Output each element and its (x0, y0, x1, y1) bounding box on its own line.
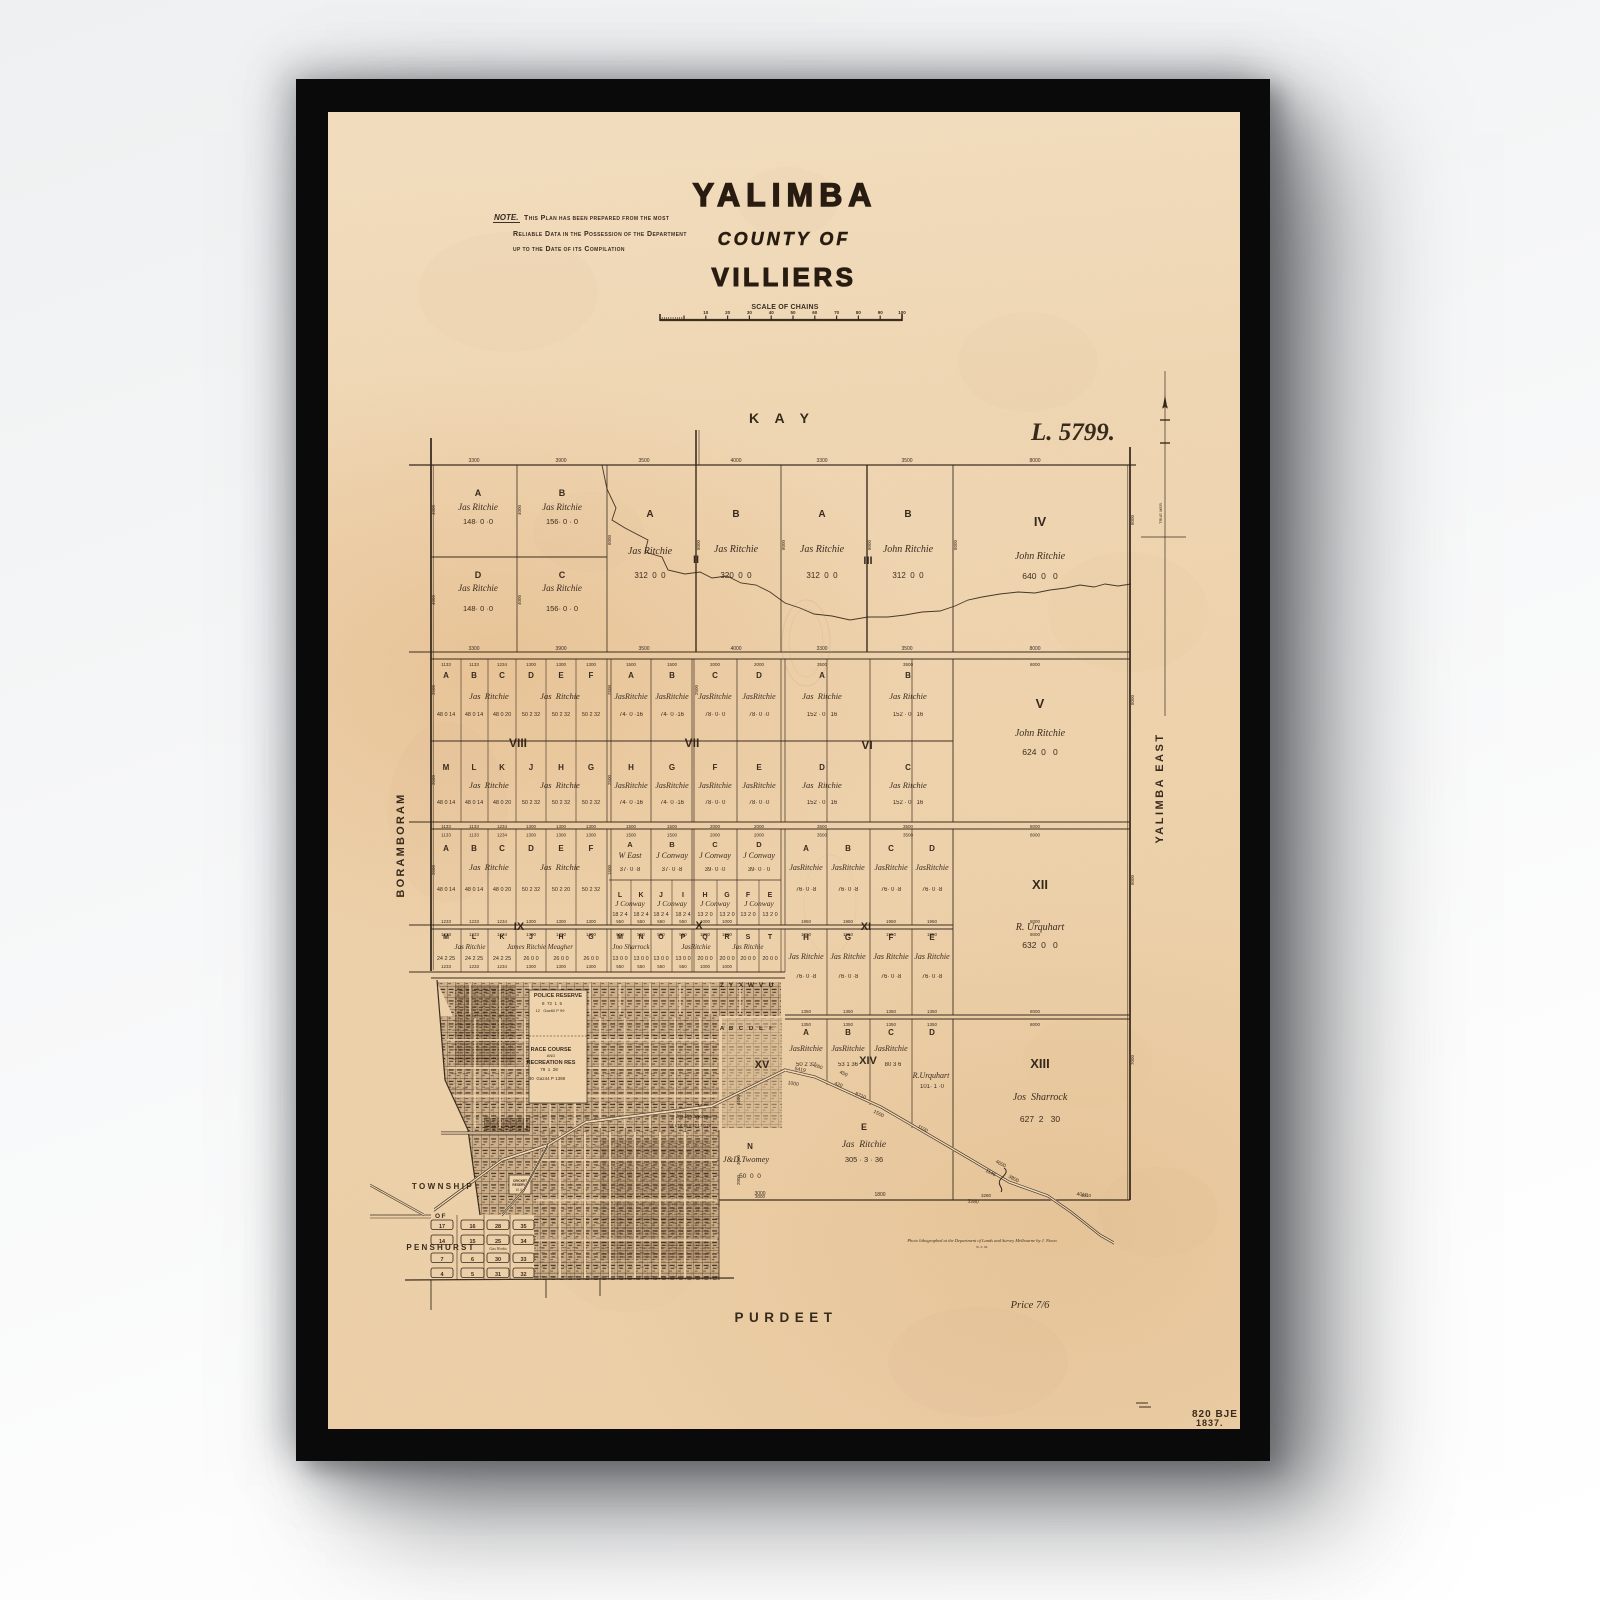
svg-text:C: C (559, 570, 566, 580)
svg-text:50 2 32: 50 2 32 (582, 800, 600, 806)
svg-text:K: K (499, 763, 505, 772)
svg-text:B: B (845, 1028, 851, 1037)
svg-text:13 0 0: 13 0 0 (653, 956, 668, 962)
svg-text:148· 0 ·0: 148· 0 ·0 (463, 517, 493, 526)
svg-text:13 0 0: 13 0 0 (633, 956, 648, 962)
svg-text:B: B (904, 509, 911, 520)
svg-text:Jno Sharrock: Jno Sharrock (612, 943, 650, 951)
svg-text:2000: 2000 (754, 824, 765, 829)
svg-text:RELIABLE DATA IN THE POSSESSIO: RELIABLE DATA IN THE POSSESSION OF THE D… (513, 231, 687, 238)
svg-text:1350: 1350 (843, 1022, 854, 1027)
svg-text:Jas Ritchie: Jas Ritchie (802, 691, 842, 701)
svg-text:50 2 20: 50 2 20 (552, 887, 570, 893)
svg-text:J: J (659, 892, 663, 899)
svg-text:4000: 4000 (431, 504, 436, 515)
svg-text:50 0 0: 50 0 0 (739, 1173, 761, 1180)
svg-text:XI: XI (861, 921, 871, 933)
svg-text:1000: 1000 (722, 932, 733, 937)
svg-text:Photo lithographed at the Depa: Photo lithographed at the Department of … (906, 1238, 1057, 1243)
svg-text:550: 550 (616, 919, 624, 924)
svg-text:3500: 3500 (638, 458, 649, 464)
svg-text:6000: 6000 (607, 534, 612, 545)
svg-text:8000: 8000 (1030, 833, 1041, 838)
svg-text:1350: 1350 (927, 1009, 938, 1014)
svg-text:II: II (693, 554, 699, 566)
svg-text:1950: 1950 (886, 932, 897, 937)
svg-text:C: C (905, 763, 911, 772)
svg-text:12 Gaz60 P 99: 12 Gaz60 P 99 (536, 1008, 566, 1013)
svg-text:XV: XV (755, 1059, 770, 1071)
svg-text:1234: 1234 (497, 919, 508, 924)
svg-text:VII: VII (685, 736, 700, 750)
svg-text:4010: 4010 (1081, 1193, 1092, 1198)
svg-text:D: D (819, 763, 825, 772)
svg-text:76· 0 ·8: 76· 0 ·8 (922, 974, 943, 980)
svg-text:550: 550 (679, 919, 687, 924)
svg-text:TOWNSHIP: TOWNSHIP (412, 1182, 474, 1191)
svg-text:1000: 1000 (700, 932, 711, 937)
svg-text:Jas Ritchie: Jas Ritchie (540, 780, 580, 790)
svg-text:152 · 0 16: 152 · 0 16 (893, 800, 924, 806)
svg-text:Jas Ritchie: Jas Ritchie (714, 544, 759, 555)
svg-text:B: B (905, 671, 911, 680)
svg-text:48 0 14: 48 0 14 (437, 887, 455, 893)
svg-text:XIII: XIII (1030, 1056, 1050, 1071)
svg-text:20 0 0: 20 0 0 (719, 956, 734, 962)
svg-text:48 0 14: 48 0 14 (437, 712, 455, 718)
svg-text:Y: Y (729, 982, 734, 989)
svg-text:C: C (712, 671, 718, 680)
svg-text:50 2 32: 50 2 32 (552, 712, 570, 718)
svg-text:50 2 32: 50 2 32 (582, 712, 600, 718)
svg-text:14: 14 (439, 1239, 446, 1245)
svg-text:Jas Ritchie: Jas Ritchie (889, 780, 927, 790)
svg-text:Jas Ritchie: Jas Ritchie (542, 583, 582, 593)
svg-text:90: 90 (878, 310, 884, 315)
svg-text:F: F (589, 671, 594, 680)
svg-text:31: 31 (495, 1272, 501, 1278)
svg-text:1133: 1133 (441, 662, 451, 667)
svg-text:Jas Ritchie: Jas Ritchie (469, 691, 509, 701)
svg-text:VIII: VIII (509, 736, 527, 750)
svg-text:A: A (720, 1026, 725, 1032)
svg-text:B: B (732, 509, 739, 520)
svg-text:24 2 25: 24 2 25 (437, 956, 455, 962)
svg-text:30: 30 (747, 310, 753, 315)
svg-text:R.Urquhart: R.Urquhart (912, 1071, 951, 1080)
svg-text:Jas Ritchie: Jas Ritchie (542, 502, 582, 512)
svg-text:20: 20 (725, 310, 731, 315)
svg-text:John Ritchie: John Ritchie (1015, 551, 1066, 562)
svg-text:70: 70 (834, 310, 840, 315)
svg-text:Jas Ritchie: Jas Ritchie (842, 1140, 886, 1150)
svg-text:50 2 32: 50 2 32 (522, 800, 540, 806)
svg-text:627 2 30: 627 2 30 (1020, 1114, 1060, 1124)
svg-text:26 0 0: 26 0 0 (523, 956, 538, 962)
svg-text:A: A (803, 844, 809, 853)
svg-text:152 · 0 16: 152 · 0 16 (807, 800, 838, 806)
svg-text:550: 550 (637, 932, 645, 937)
svg-text:8000: 8000 (781, 539, 786, 550)
svg-text:8000: 8000 (696, 539, 701, 550)
svg-text:30: 30 (495, 1257, 501, 1263)
svg-text:13 2 0: 13 2 0 (740, 912, 755, 918)
svg-text:550: 550 (637, 919, 645, 924)
svg-text:Jas Ritchie: Jas Ritchie (889, 691, 927, 701)
svg-text:1000: 1000 (722, 964, 733, 969)
svg-text:2500: 2500 (607, 684, 612, 695)
svg-text:26 0 0: 26 0 0 (583, 956, 598, 962)
svg-text:Jas Ritchie: Jas Ritchie (540, 691, 580, 701)
svg-text:13 2 0: 13 2 0 (762, 912, 777, 918)
svg-text:C: C (499, 844, 505, 853)
svg-text:35: 35 (520, 1224, 526, 1230)
svg-text:48 0 20: 48 0 20 (493, 887, 511, 893)
svg-text:Jas Ritchie: Jas Ritchie (733, 943, 764, 951)
svg-text:1300: 1300 (586, 919, 597, 924)
svg-text:76· 0 ·8: 76· 0 ·8 (796, 974, 817, 980)
svg-text:4000: 4000 (517, 504, 522, 515)
svg-text:550: 550 (616, 932, 624, 937)
svg-text:76· 0 ·8: 76· 0 ·8 (838, 887, 859, 893)
svg-text:1133: 1133 (441, 824, 451, 829)
svg-text:1500: 1500 (667, 833, 678, 838)
svg-text:Jas Ritchie: Jas Ritchie (873, 952, 909, 961)
svg-text:1300: 1300 (526, 964, 537, 969)
svg-text:Gas Works: Gas Works (489, 1246, 507, 1251)
svg-text:37· 0 ·8: 37· 0 ·8 (662, 867, 683, 873)
svg-text:2000: 2000 (710, 824, 721, 829)
svg-text:1837.: 1837. (1196, 1418, 1224, 1428)
svg-text:N: N (747, 1142, 753, 1151)
svg-text:8000: 8000 (1130, 874, 1135, 885)
svg-text:1500: 1500 (626, 824, 637, 829)
svg-text:550: 550 (679, 964, 687, 969)
svg-text:18 2 4: 18 2 4 (653, 912, 668, 918)
svg-text:Jos Sharrock: Jos Sharrock (1013, 1092, 1068, 1103)
svg-text:B: B (729, 1026, 734, 1032)
svg-text:4500: 4500 (736, 1094, 741, 1105)
svg-text:76· 0 ·8: 76· 0 ·8 (796, 887, 817, 893)
svg-text:Jas Ritchie: Jas Ritchie (802, 780, 842, 790)
svg-text:PURDEET: PURDEET (734, 1310, 837, 1325)
svg-text:VILLIERS: VILLIERS (711, 262, 856, 292)
svg-text:48 0 14: 48 0 14 (437, 800, 455, 806)
svg-text:1950: 1950 (843, 919, 854, 924)
svg-text:3300: 3300 (468, 646, 479, 652)
svg-text:VI: VI (861, 738, 872, 752)
svg-text:39· 0 · 0: 39· 0 · 0 (748, 867, 771, 873)
svg-text:53 1 36: 53 1 36 (838, 1062, 859, 1068)
svg-text:4000: 4000 (431, 594, 436, 605)
svg-text:JasRitchie: JasRitchie (742, 781, 776, 790)
svg-text:8000: 8000 (867, 539, 872, 550)
svg-text:BORAMBORAM: BORAMBORAM (395, 792, 407, 897)
svg-text:18 2 4: 18 2 4 (633, 912, 648, 918)
svg-text:8000: 8000 (1029, 458, 1040, 464)
svg-text:JasRitchie: JasRitchie (874, 863, 908, 872)
svg-text:1800: 1800 (874, 1192, 885, 1198)
svg-text:7000: 7000 (1130, 1054, 1135, 1065)
svg-text:NOTE.: NOTE. (494, 213, 518, 222)
svg-text:34: 34 (520, 1239, 527, 1245)
svg-text:8000: 8000 (1029, 646, 1040, 652)
svg-text:50 2 32: 50 2 32 (522, 887, 540, 893)
svg-text:D: D (749, 1026, 754, 1032)
svg-text:THIS PLAN HAS BEEN PREPARED FR: THIS PLAN HAS BEEN PREPARED FROM THE MOS… (524, 215, 669, 222)
svg-text:1233: 1233 (441, 964, 452, 969)
svg-text:1000: 1000 (700, 964, 711, 969)
svg-text:312 0 0: 312 0 0 (634, 571, 666, 580)
svg-text:8000: 8000 (1030, 662, 1041, 667)
svg-text:76· 0 ·8: 76· 0 ·8 (922, 887, 943, 893)
svg-text:148· 0 ·0: 148· 0 ·0 (463, 604, 493, 613)
svg-text:D: D (929, 1028, 935, 1037)
svg-text:JasRitchie: JasRitchie (874, 1044, 908, 1053)
svg-text:18 2 4: 18 2 4 (612, 912, 627, 918)
svg-text:8000: 8000 (1030, 824, 1041, 829)
svg-text:8000: 8000 (953, 539, 958, 550)
svg-text:48 0 14: 48 0 14 (465, 712, 483, 718)
svg-text:7: 7 (440, 1257, 443, 1263)
svg-text:48 0 14: 48 0 14 (465, 800, 483, 806)
svg-text:152 · 0 16: 152 · 0 16 (807, 712, 838, 718)
svg-text:156· 0 · 0: 156· 0 · 0 (546, 517, 578, 526)
svg-text:1233: 1233 (469, 964, 480, 969)
svg-text:T: T (768, 934, 773, 941)
svg-text:1234: 1234 (497, 824, 508, 829)
svg-text:28: 28 (495, 1224, 501, 1230)
svg-text:Z: Z (720, 982, 724, 989)
svg-text:76· 0 ·8: 76· 0 ·8 (838, 974, 859, 980)
svg-text:30 Gaz44 P 1398: 30 Gaz44 P 1398 (529, 1076, 566, 1081)
svg-text:A: A (443, 844, 449, 853)
svg-text:C: C (888, 844, 894, 853)
svg-text:C: C (499, 671, 505, 680)
svg-text:XII: XII (1032, 877, 1048, 892)
svg-text:2500: 2500 (607, 774, 612, 785)
svg-text:1350: 1350 (886, 1022, 897, 1027)
svg-text:6: 6 (471, 1257, 474, 1263)
svg-text:1300: 1300 (526, 833, 537, 838)
svg-text:48 0 20: 48 0 20 (493, 800, 511, 806)
svg-text:1300: 1300 (556, 662, 567, 667)
svg-text:G: G (724, 892, 730, 899)
svg-text:G: G (669, 763, 675, 772)
svg-text:JasRitchie: JasRitchie (655, 692, 689, 701)
svg-text:100: 100 (898, 310, 906, 315)
svg-text:1350: 1350 (843, 1009, 854, 1014)
svg-text:D: D (475, 570, 482, 580)
svg-text:1500: 1500 (667, 662, 678, 667)
svg-text:1350: 1350 (886, 1009, 897, 1014)
svg-text:550: 550 (679, 932, 687, 937)
svg-text:50 2 32: 50 2 32 (552, 800, 570, 806)
svg-text:A: A (475, 488, 482, 498)
svg-text:Jas Ritchie: Jas Ritchie (469, 780, 509, 790)
svg-text:XIV: XIV (859, 1055, 877, 1067)
svg-text:1950: 1950 (886, 919, 897, 924)
svg-text:JasRitchie: JasRitchie (789, 863, 823, 872)
svg-text:F: F (769, 1026, 773, 1032)
svg-text:15: 15 (469, 1239, 475, 1245)
svg-text:3900: 3900 (555, 458, 566, 464)
svg-text:1133: 1133 (469, 824, 479, 829)
svg-text:E: E (861, 1122, 867, 1132)
svg-text:4000: 4000 (730, 458, 741, 464)
svg-text:550: 550 (657, 932, 665, 937)
svg-text:V: V (1036, 696, 1045, 711)
svg-text:8000: 8000 (1030, 1009, 1041, 1014)
svg-text:A: A (818, 509, 825, 520)
svg-text:8000: 8000 (1030, 1022, 1041, 1027)
svg-text:JasRitchie: JasRitchie (831, 863, 865, 872)
svg-text:JasRitchie: JasRitchie (655, 781, 689, 790)
svg-text:V: V (759, 982, 764, 989)
svg-text:Jas Ritchie: Jas Ritchie (469, 862, 509, 872)
svg-text:1233: 1233 (469, 932, 480, 937)
svg-text:78· 0· 0: 78· 0· 0 (705, 800, 726, 806)
svg-text:550: 550 (657, 919, 665, 924)
svg-text:J Conway: J Conway (656, 851, 688, 860)
svg-text:C: C (739, 1026, 744, 1032)
svg-text:AND: AND (547, 1053, 556, 1058)
svg-text:20 0 0: 20 0 0 (762, 956, 777, 962)
svg-text:624 0 0: 624 0 0 (1022, 747, 1058, 757)
svg-text:W: W (748, 982, 755, 989)
svg-text:L: L (472, 763, 477, 772)
svg-text:4000: 4000 (730, 646, 741, 652)
svg-text:I: I (682, 892, 684, 899)
svg-text:20 0 0: 20 0 0 (697, 956, 712, 962)
svg-text:1234: 1234 (497, 833, 508, 838)
svg-text:John Ritchie: John Ritchie (1015, 728, 1066, 739)
svg-text:E: E (558, 671, 564, 680)
svg-text:K A Y: K A Y (749, 410, 815, 426)
svg-text:1233: 1233 (441, 932, 452, 937)
svg-text:B: B (669, 671, 675, 680)
svg-text:C: C (712, 840, 718, 849)
svg-text:J Conway: J Conway (744, 899, 774, 908)
svg-text:A: A (803, 1028, 809, 1037)
svg-text:YALIMBA EAST: YALIMBA EAST (1154, 732, 1166, 843)
svg-text:74· 0 ·16: 74· 0 ·16 (619, 712, 644, 718)
svg-text:74· 0 ·16: 74· 0 ·16 (660, 800, 685, 806)
svg-text:3500: 3500 (901, 646, 912, 652)
svg-text:13 2 0: 13 2 0 (697, 912, 712, 918)
svg-text:X: X (739, 982, 744, 989)
svg-text:3500: 3500 (817, 833, 828, 838)
svg-text:G: G (588, 763, 594, 772)
svg-text:1233: 1233 (441, 919, 452, 924)
svg-text:80: 80 (856, 310, 862, 315)
svg-text:1233: 1233 (469, 919, 480, 924)
svg-text:JasRitchie: JasRitchie (698, 781, 732, 790)
svg-text:1234: 1234 (497, 964, 508, 969)
svg-text:J Conway: J Conway (743, 851, 775, 860)
svg-text:48 0 20: 48 0 20 (493, 712, 511, 718)
svg-text:2000: 2000 (754, 662, 765, 667)
svg-text:C: C (888, 1028, 894, 1037)
svg-text:1500: 1500 (626, 662, 637, 667)
svg-text:RECREATION RES: RECREATION RES (527, 1060, 576, 1066)
svg-text:3000: 3000 (755, 1194, 766, 1199)
svg-text:48 0 14: 48 0 14 (465, 887, 483, 893)
svg-text:1300: 1300 (526, 932, 537, 937)
svg-text:H: H (558, 763, 564, 772)
svg-text:80 3 6: 80 3 6 (885, 1062, 902, 1068)
svg-text:J: J (529, 763, 533, 772)
svg-text:E: E (558, 844, 564, 853)
svg-text:8000: 8000 (1030, 919, 1041, 924)
svg-text:550: 550 (616, 964, 624, 969)
svg-text:III: III (863, 555, 872, 567)
svg-text:Jas Ritchie: Jas Ritchie (455, 943, 486, 951)
svg-text:10: 10 (703, 310, 709, 315)
svg-text:B: B (845, 844, 851, 853)
svg-text:H: H (702, 892, 707, 899)
svg-text:2000: 2000 (710, 662, 721, 667)
svg-text:50: 50 (790, 310, 796, 315)
svg-text:JasRitchie: JasRitchie (789, 1044, 823, 1053)
svg-text:1500: 1500 (607, 864, 612, 875)
svg-text:8000: 8000 (1130, 694, 1135, 705)
svg-text:1234: 1234 (497, 932, 508, 937)
svg-text:K: K (638, 892, 643, 899)
svg-text:312 0 0: 312 0 0 (892, 571, 924, 580)
svg-text:JasRitchie: JasRitchie (831, 1044, 865, 1053)
svg-text:1350: 1350 (927, 1022, 938, 1027)
svg-text:Jas Ritchie: Jas Ritchie (458, 583, 498, 593)
svg-text:1300: 1300 (556, 824, 567, 829)
svg-text:3500: 3500 (903, 824, 914, 829)
svg-text:1350: 1350 (801, 1009, 812, 1014)
svg-text:5: 5 (471, 1272, 474, 1278)
svg-text:1000: 1000 (722, 919, 733, 924)
svg-text:A: A (646, 509, 653, 520)
svg-text:D: D (528, 671, 534, 680)
svg-text:UP TO THE DATE OF ITS COMPILAT: UP TO THE DATE OF ITS COMPILATION (513, 246, 625, 253)
svg-text:F: F (746, 892, 751, 899)
svg-text:78· 0 ·0: 78· 0 ·0 (749, 800, 770, 806)
svg-text:COUNTY OF: COUNTY OF (718, 229, 851, 249)
svg-text:2000: 2000 (710, 833, 721, 838)
svg-text:D: D (756, 671, 762, 680)
svg-text:8 72 1 5: 8 72 1 5 (542, 1001, 563, 1006)
svg-text:JasRitchie: JasRitchie (742, 692, 776, 701)
svg-text:3500: 3500 (431, 684, 436, 695)
svg-text:H: H (628, 763, 634, 772)
svg-text:Jas Ritchie: Jas Ritchie (540, 862, 580, 872)
svg-text:37· 0 ·8: 37· 0 ·8 (620, 867, 641, 873)
svg-text:A: A (627, 840, 633, 849)
svg-text:SCALE OF CHAINS: SCALE OF CHAINS (751, 304, 818, 311)
svg-text:640 0 0: 640 0 0 (1022, 571, 1058, 581)
svg-text:39· 0 ·0: 39· 0 ·0 (705, 867, 726, 873)
svg-text:1133: 1133 (441, 833, 451, 838)
svg-text:3300: 3300 (468, 458, 479, 464)
svg-text:32: 32 (520, 1272, 526, 1278)
svg-text:3000: 3000 (736, 1154, 741, 1165)
svg-text:Jas Ritchie: Jas Ritchie (788, 952, 824, 961)
svg-text:JasRitchie: JasRitchie (614, 781, 648, 790)
svg-text:101· 1 ·0: 101· 1 ·0 (920, 1084, 945, 1090)
svg-text:JasRitchie: JasRitchie (681, 943, 710, 951)
svg-text:JasRitchie: JasRitchie (698, 692, 732, 701)
svg-text:78· 0· 0: 78· 0· 0 (705, 712, 726, 718)
svg-text:74· 0 ·16: 74· 0 ·16 (619, 800, 644, 806)
svg-text:J Conway: J Conway (657, 899, 687, 908)
